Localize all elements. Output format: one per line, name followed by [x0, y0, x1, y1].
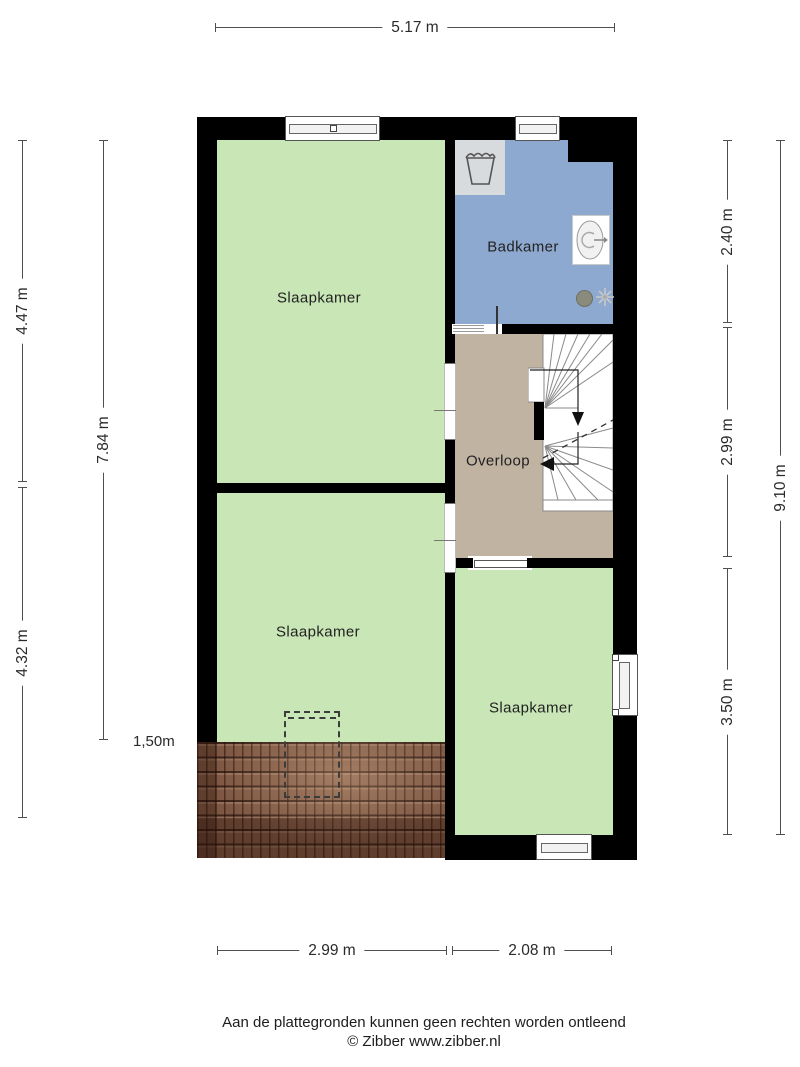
knee-wall-height-label: 1,50m [133, 733, 175, 750]
dimension-label: 4.32 m [14, 620, 32, 685]
window-top-right [515, 116, 560, 141]
shower-drain [576, 290, 593, 307]
laundry-tub-icon [455, 140, 505, 195]
window-bottom-bedroom [536, 834, 592, 860]
window-glass [619, 662, 630, 709]
dimension-right-total: 9.10 m [780, 140, 781, 835]
window-mullion [612, 654, 619, 661]
dimension-left-total: 7.84 m [103, 140, 104, 740]
dimension-right-bedroom: 3.50 m [727, 568, 728, 835]
wall-top [197, 117, 637, 140]
window-glass [519, 124, 557, 134]
dimension-left-bottom: 4.32 m [22, 487, 23, 818]
dimension-label: 4.47 m [14, 278, 32, 343]
wall-between-bedrooms [197, 483, 455, 493]
wall-left [197, 140, 217, 742]
window-glass [541, 843, 588, 853]
dimension-label: 5.17 m [382, 19, 447, 37]
stairs [528, 334, 613, 558]
footer-copyright: © Zibber www.zibber.nl [48, 1032, 800, 1051]
door-bedroom-bottom-slab [474, 560, 528, 568]
room-label-bathroom: Badkamer [487, 239, 559, 256]
door-bedroom-middle-leaf [434, 540, 456, 541]
roof-tiles-shadow-bottom [197, 818, 447, 858]
room-label-bedroom-middle: Slaapkamer [276, 624, 360, 641]
door-bedroom-middle-opening [444, 503, 456, 573]
dimension-top-width: 5.17 m [215, 27, 615, 28]
dimension-label: 2.08 m [499, 942, 564, 960]
sink [572, 215, 610, 265]
window-top-left [285, 116, 380, 141]
window-mullion [330, 125, 337, 132]
dimension-label: 9.10 m [772, 455, 790, 520]
bedroom-middle-floor [217, 493, 445, 742]
room-label-landing: Overloop [466, 453, 530, 470]
dormer-inner-line [288, 717, 336, 719]
sink-basin-icon [573, 216, 609, 264]
room-label-bedroom-bottom: Slaapkamer [489, 700, 573, 717]
dimension-right-landing: 2.99 m [727, 327, 728, 557]
dimension-label: 2.99 m [299, 942, 364, 960]
footer: Aan de plattegronden kunnen geen rechten… [0, 1013, 800, 1051]
room-label-bedroom-top: Slaapkamer [277, 290, 361, 307]
bedroom-top-floor [217, 140, 445, 483]
door-bedroom-top-opening [444, 363, 456, 440]
dimension-left-top: 4.47 m [22, 140, 23, 482]
dimension-label: 7.84 m [95, 407, 113, 472]
dimension-label: 2.99 m [719, 409, 737, 474]
door-bathroom-leaf [496, 306, 498, 334]
shower-head-icon [596, 288, 614, 306]
door-jamb [527, 558, 532, 568]
door-bedroom-top-leaf [434, 410, 456, 411]
washing-machine [455, 140, 505, 195]
door-bathroom-threshold [453, 325, 484, 333]
dormer-outline [284, 711, 340, 798]
dimension-bottom-right: 2.08 m [452, 950, 612, 951]
roof-tiles-shadow-left [197, 742, 217, 858]
wall-right [613, 140, 637, 860]
dimension-right-bathroom: 2.40 m [727, 140, 728, 323]
dimension-label: 2.40 m [719, 199, 737, 264]
dimension-bottom-left: 2.99 m [217, 950, 447, 951]
window-mullion [612, 709, 619, 716]
footer-disclaimer: Aan de plattegronden kunnen geen rechten… [48, 1013, 800, 1032]
wall-top-right-notch [568, 140, 613, 162]
floor-plan: Slaapkamer Badkamer Overloop Slaapkamer … [0, 0, 800, 1067]
door-jamb [468, 558, 473, 568]
window-right-bedroom [612, 654, 638, 716]
dimension-label: 3.50 m [719, 669, 737, 734]
